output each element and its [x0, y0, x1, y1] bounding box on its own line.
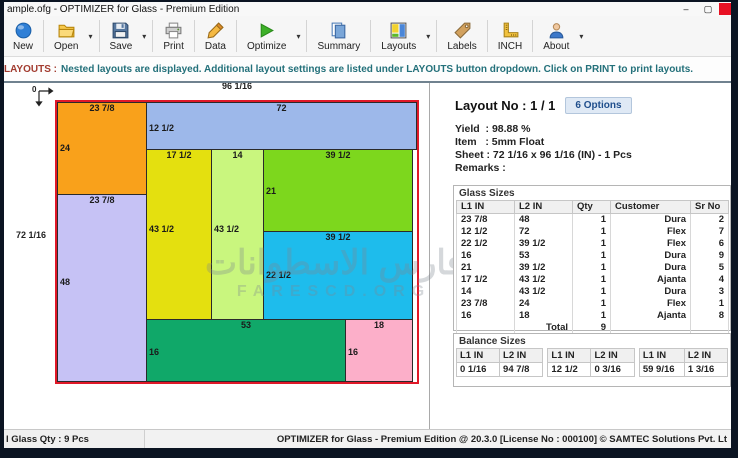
column-header[interactable]: L1 IN: [457, 201, 515, 214]
toolbar-button-labels[interactable]: Labels: [440, 17, 483, 55]
printer-icon: [164, 21, 183, 40]
main-area: 96 1/16 72 1/16 0 23 7/824 7212 1/2 17 1…: [4, 83, 731, 429]
glass-row[interactable]: 1443 1/21Dura3: [457, 286, 729, 298]
sheet-height-label: 72 1/16: [16, 230, 46, 240]
piece-blue: 7212 1/2: [146, 102, 417, 150]
balance-cell: 1 3/16: [684, 363, 727, 377]
glass-cell: 43 1/2: [515, 286, 573, 298]
item-text: Item : 5mm Float: [455, 136, 544, 148]
balance-cell: 59 9/16: [639, 363, 684, 377]
toolbar-separator: [487, 20, 488, 52]
toolbar-separator: [152, 20, 153, 52]
glass-cell: 16: [457, 250, 515, 262]
glass-cell: 1: [573, 238, 611, 250]
balance-column-header: L1 IN: [548, 349, 591, 363]
glass-cell: 18: [515, 310, 573, 322]
glass-cell: 1: [573, 250, 611, 262]
sheet-width-label: 96 1/16: [55, 83, 419, 91]
panel-splitter[interactable]: [429, 83, 430, 429]
glass-cell: Ajanta: [611, 310, 691, 322]
glass-row[interactable]: 16531Dura9: [457, 250, 729, 262]
toolbar-button-label: New: [13, 41, 33, 52]
toolbar-separator: [370, 20, 371, 52]
glass-cell: 22 1/2: [457, 238, 515, 250]
save-floppy-icon: [111, 21, 130, 40]
new-icon: [14, 21, 33, 40]
glass-cell: 14: [457, 286, 515, 298]
toolbar-button-summary[interactable]: Summary: [310, 17, 367, 55]
column-header[interactable]: Qty: [573, 201, 611, 214]
layout-info: Yield : 98.88 %Item : 5mm FloatSheet : 7…: [455, 123, 632, 175]
toolbar-separator: [306, 20, 307, 52]
glass-cell: 9: [691, 250, 729, 262]
glass-cell: 6: [691, 238, 729, 250]
glass-cell: 7: [691, 226, 729, 238]
piece-yellow: 17 1/243 1/2: [146, 149, 212, 320]
piece-cyan: 39 1/222 1/2: [263, 231, 413, 320]
notice-bar: LAYOUTS : Nested layouts are displayed. …: [4, 57, 731, 83]
glass-cell: 1: [573, 214, 611, 227]
column-header[interactable]: Sr No: [691, 201, 729, 214]
glass-cell: 5: [691, 262, 729, 274]
toolbar-separator: [436, 20, 437, 52]
balance-cell: 0 3/16: [591, 363, 634, 377]
close-button[interactable]: [719, 3, 731, 15]
balance-sizes-group: Balance Sizes L1 INL2 INL1 INL2 INL1 INL…: [453, 333, 731, 387]
glass-cell: 1: [573, 262, 611, 274]
piece-width-label: 39 1/2: [264, 150, 412, 160]
glass-cell: Dura: [611, 262, 691, 274]
open-folder-icon: [57, 21, 76, 40]
minimize-button[interactable]: –: [675, 2, 697, 16]
toolbar-separator: [43, 20, 44, 52]
pencil-icon: [206, 21, 225, 40]
window-controls: – ▢: [675, 2, 731, 16]
sheet-outline: 23 7/824 7212 1/2 17 1/243 1/2 1443 1/2 …: [55, 100, 419, 384]
glass-cell: 21: [457, 262, 515, 274]
glass-cell: Flex: [611, 298, 691, 310]
glass-cell: 1: [573, 310, 611, 322]
notice-highlight: LAYOUTS :: [4, 64, 57, 75]
notice-text: Nested layouts are displayed. Additional…: [61, 64, 693, 75]
remarks-text: Remarks :: [455, 162, 506, 174]
save-dropdown-arrow[interactable]: ▾: [139, 32, 149, 41]
piece-height-label: 16: [348, 347, 358, 357]
tag-icon: [453, 21, 472, 40]
glass-sizes-body: 23 7/8481Dura212 1/2721Flex722 1/239 1/2…: [457, 214, 729, 335]
piece-width-label: 18: [346, 320, 412, 330]
glass-header-row: L1 IN L2 IN Qty Customer Sr No: [457, 201, 729, 214]
glass-cell: 48: [515, 214, 573, 227]
toolbar-separator: [532, 20, 533, 52]
balance-column-header: L2 IN: [591, 349, 634, 363]
toolbar-button-new[interactable]: New: [6, 17, 40, 55]
glass-cell: 72: [515, 226, 573, 238]
sheet-text: Sheet : 72 1/16 x 96 1/16 (IN) - 1 Pcs: [455, 149, 632, 161]
piece-green: 39 1/221: [263, 149, 413, 232]
toolbar-button-label: Layouts: [381, 41, 416, 52]
toolbar-button-open[interactable]: Open: [47, 17, 85, 55]
toolbar: New Open ▾ Save ▾: [4, 16, 731, 57]
glass-row[interactable]: 22 1/239 1/21Flex6: [457, 238, 729, 250]
glass-cell: 39 1/2: [515, 262, 573, 274]
glass-cell: 16: [457, 310, 515, 322]
balance-cell: 94 7/8: [500, 363, 543, 377]
toolbar-separator: [236, 20, 237, 52]
piece-height-label: 48: [60, 277, 70, 287]
glass-sizes-group: Glass Sizes L1 IN L2 IN Qty Customer Sr …: [453, 185, 731, 331]
glass-cell: Dura: [611, 250, 691, 262]
toolbar-button-inch[interactable]: INCH: [491, 17, 529, 55]
glass-cell: 1: [573, 298, 611, 310]
toolbar-button-about[interactable]: About: [536, 17, 576, 55]
glass-row[interactable]: 16181Ajanta8: [457, 310, 729, 322]
glass-cell: 1: [573, 226, 611, 238]
piece-pink: 1816: [345, 319, 413, 382]
balance-column-header: L1 IN: [639, 349, 684, 363]
glass-row[interactable]: 23 7/8241Flex1: [457, 298, 729, 310]
balance-cell: 0 1/16: [457, 363, 500, 377]
toolbar-button-label: Print: [163, 41, 184, 52]
layout-grid-icon: [389, 21, 408, 40]
glass-cell: 43 1/2: [515, 274, 573, 286]
glass-row[interactable]: 12 1/2721Flex7: [457, 226, 729, 238]
toolbar-button-data[interactable]: Data: [198, 17, 233, 55]
piece-lavender: 23 7/848: [57, 194, 147, 382]
piece-height-label: 22 1/2: [266, 270, 291, 280]
play-icon: [257, 21, 276, 40]
glass-cell: 2: [691, 214, 729, 227]
piece-width-label: 23 7/8: [58, 103, 146, 113]
toolbar-button-label: About: [543, 41, 569, 52]
piece-orange: 23 7/824: [57, 102, 147, 195]
piece-width-label: 39 1/2: [264, 232, 412, 242]
piece-width-label: 14: [212, 150, 263, 160]
app-window: ample.ofg - OPTIMIZER for Glass - Premiu…: [4, 2, 731, 448]
glass-cell: Flex: [611, 226, 691, 238]
toolbar-button-print[interactable]: Print: [156, 17, 191, 55]
piece-height-label: 43 1/2: [149, 224, 174, 234]
status-app-info: OPTIMIZER for Glass - Premium Edition @ …: [144, 430, 731, 448]
piece-sea-green: 5316: [146, 319, 346, 382]
toolbar-button-label: Labels: [447, 41, 476, 52]
optimize-dropdown-arrow[interactable]: ▾: [293, 32, 303, 41]
piece-height-label: 12 1/2: [149, 123, 174, 133]
toolbar-button-label: INCH: [498, 41, 522, 52]
column-header[interactable]: Customer: [611, 201, 691, 214]
glass-row[interactable]: 17 1/243 1/21Ajanta4: [457, 274, 729, 286]
screen: ample.ofg - OPTIMIZER for Glass - Premiu…: [0, 0, 738, 458]
status-glass-qty: l Glass Qty : 9 Pcs: [4, 430, 144, 448]
balance-sizes-title: Balance Sizes: [454, 334, 730, 348]
document-icon: [329, 21, 348, 40]
glass-cell: 24: [515, 298, 573, 310]
glass-cell: 8: [691, 310, 729, 322]
piece-width-label: 72: [147, 103, 416, 113]
balance-cell: 12 1/2: [548, 363, 591, 377]
piece-width-label: 23 7/8: [58, 195, 146, 205]
toolbar-separator: [99, 20, 100, 52]
glass-cell: 1: [573, 274, 611, 286]
balance-column-header: L1 IN: [457, 349, 500, 363]
glass-cell: Ajanta: [611, 274, 691, 286]
toolbar-button-label: Save: [110, 41, 133, 52]
toolbar-button-label: Open: [54, 41, 78, 52]
toolbar-button-label: Summary: [317, 41, 360, 52]
glass-cell: Flex: [611, 238, 691, 250]
column-header[interactable]: L2 IN: [515, 201, 573, 214]
toolbar-button-label: Optimize: [247, 41, 286, 52]
glass-cell: 23 7/8: [457, 298, 515, 310]
glass-cell: 4: [691, 274, 729, 286]
glass-sizes-title: Glass Sizes: [454, 186, 730, 200]
glass-sizes-table: L1 IN L2 IN Qty Customer Sr No 23 7/8481…: [456, 200, 729, 334]
piece-height-label: 16: [149, 347, 159, 357]
balance-sizes-table: L1 INL2 INL1 INL2 INL1 INL2 IN 0 1/1694 …: [456, 348, 728, 377]
yield-text: Yield : 98.88 %: [455, 123, 530, 135]
options-button[interactable]: 6 Options: [565, 97, 631, 114]
glass-cell: Dura: [611, 214, 691, 227]
maximize-button[interactable]: ▢: [697, 2, 719, 16]
glass-cell: 53: [515, 250, 573, 262]
balance-column-header: L2 IN: [684, 349, 727, 363]
layouts-dropdown-arrow[interactable]: ▾: [423, 32, 433, 41]
glass-cell: 39 1/2: [515, 238, 573, 250]
person-icon: [547, 21, 566, 40]
open-dropdown-arrow[interactable]: ▾: [85, 32, 95, 41]
glass-cell: Dura: [611, 286, 691, 298]
toolbar-button-optimize[interactable]: Optimize: [240, 17, 293, 55]
status-bar: l Glass Qty : 9 Pcs OPTIMIZER for Glass …: [4, 429, 731, 448]
glass-cell: 1: [573, 286, 611, 298]
piece-width-label: 53: [147, 320, 345, 330]
balance-header-row: L1 INL2 INL1 INL2 INL1 INL2 IN: [457, 349, 728, 363]
glass-row[interactable]: 2139 1/21Dura5: [457, 262, 729, 274]
glass-cell: 17 1/2: [457, 274, 515, 286]
piece-height-label: 21: [266, 186, 276, 196]
window-title: ample.ofg - OPTIMIZER for Glass - Premiu…: [4, 4, 239, 15]
piece-height-label: 24: [60, 143, 70, 153]
ruler-icon: [501, 21, 520, 40]
piece-height-label: 43 1/2: [214, 224, 239, 234]
glass-cell: 3: [691, 286, 729, 298]
toolbar-button-layouts[interactable]: Layouts: [374, 17, 423, 55]
glass-cell: 12 1/2: [457, 226, 515, 238]
layout-number-title: Layout No : 1 / 1: [455, 98, 555, 113]
glass-cell: 23 7/8: [457, 214, 515, 227]
toolbar-button-save[interactable]: Save: [103, 17, 140, 55]
toolbar-button-label: Data: [205, 41, 226, 52]
balance-column-header: L2 IN: [500, 349, 543, 363]
origin-label: 0: [32, 85, 36, 94]
title-bar: ample.ofg - OPTIMIZER for Glass - Premiu…: [4, 2, 731, 16]
piece-width-label: 17 1/2: [147, 150, 211, 160]
piece-pale-green: 1443 1/2: [211, 149, 264, 320]
glass-row[interactable]: 23 7/8481Dura2: [457, 214, 729, 227]
glass-cell: 1: [691, 298, 729, 310]
balance-row: 0 1/1694 7/812 1/20 3/1659 9/161 3/16: [457, 363, 728, 377]
layout-panel: Layout No : 1 / 1 6 Options Yield : 98.8…: [451, 83, 731, 429]
about-dropdown-arrow[interactable]: ▾: [576, 32, 586, 41]
toolbar-separator: [194, 20, 195, 52]
